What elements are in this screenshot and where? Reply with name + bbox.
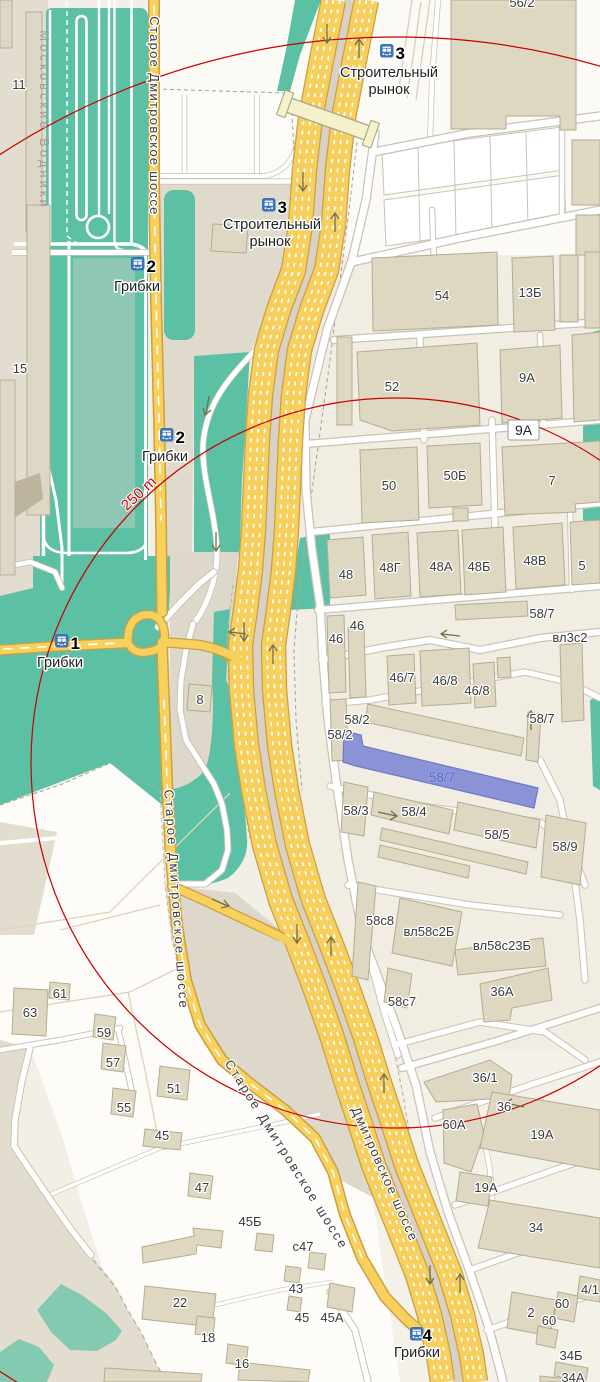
svg-text:18: 18 [201, 1330, 215, 1345]
svg-text:11: 11 [12, 77, 26, 92]
svg-text:46: 46 [329, 631, 343, 646]
svg-text:58/7: 58/7 [529, 606, 554, 621]
svg-text:60: 60 [555, 1296, 569, 1311]
svg-text:50: 50 [382, 478, 396, 493]
svg-text:5: 5 [578, 558, 585, 573]
svg-text:58/2: 58/2 [344, 712, 369, 727]
svg-text:Грибки: Грибки [37, 655, 83, 671]
svg-text:вл3с2: вл3с2 [552, 630, 587, 645]
svg-text:2: 2 [147, 257, 156, 276]
svg-text:15: 15 [13, 361, 27, 376]
svg-text:46/8: 46/8 [432, 673, 457, 688]
svg-text:45: 45 [155, 1128, 169, 1143]
svg-text:48: 48 [339, 567, 353, 582]
svg-text:34Б: 34Б [560, 1348, 583, 1363]
svg-text:13Б: 13Б [519, 285, 542, 300]
svg-text:43: 43 [289, 1281, 303, 1296]
svg-text:58/3: 58/3 [343, 803, 368, 818]
svg-text:22: 22 [173, 1295, 187, 1310]
svg-text:48В: 48В [523, 553, 546, 568]
svg-text:58/7: 58/7 [429, 770, 455, 785]
svg-text:рынок: рынок [369, 82, 411, 98]
svg-text:34А: 34А [561, 1370, 584, 1382]
svg-text:60: 60 [542, 1313, 556, 1328]
svg-text:46/8: 46/8 [464, 683, 489, 698]
svg-text:58/2: 58/2 [327, 727, 352, 742]
svg-text:56/2: 56/2 [509, 0, 534, 10]
svg-text:вл58с2Б: вл58с2Б [404, 924, 455, 939]
svg-text:Старое Дмитровское шоссе: Старое Дмитровское шоссе [147, 16, 162, 215]
svg-text:58с7: 58с7 [388, 994, 416, 1009]
svg-text:48Б: 48Б [468, 559, 491, 574]
svg-text:рынок: рынок [250, 234, 292, 250]
svg-text:8: 8 [196, 692, 203, 707]
svg-text:46/7: 46/7 [389, 670, 414, 685]
svg-text:46: 46 [350, 618, 364, 633]
svg-text:50Б: 50Б [444, 468, 467, 483]
svg-text:7: 7 [548, 473, 555, 488]
svg-text:4/1: 4/1 [581, 1282, 599, 1297]
svg-text:Строительный: Строительный [223, 217, 321, 233]
svg-text:58/9: 58/9 [552, 839, 577, 854]
svg-text:58/5: 58/5 [484, 827, 509, 842]
svg-text:58с8: 58с8 [366, 913, 394, 928]
svg-text:Строительный: Строительный [340, 65, 438, 81]
svg-text:59: 59 [97, 1025, 111, 1040]
svg-text:Московские Водники: Московские Водники [37, 30, 52, 209]
svg-text:3: 3 [278, 198, 287, 217]
svg-text:45А: 45А [320, 1310, 343, 1325]
svg-text:2: 2 [176, 428, 185, 447]
svg-text:4: 4 [423, 1326, 433, 1345]
svg-text:54: 54 [435, 288, 449, 303]
svg-text:45Б: 45Б [239, 1214, 262, 1229]
svg-text:Грибки: Грибки [394, 1345, 440, 1361]
svg-text:48Г: 48Г [379, 560, 401, 575]
svg-text:63: 63 [23, 1005, 37, 1020]
svg-text:36/1: 36/1 [472, 1070, 497, 1085]
svg-text:1: 1 [71, 634, 80, 653]
svg-text:вл58с23Б: вл58с23Б [473, 938, 531, 953]
svg-text:16: 16 [235, 1356, 249, 1371]
svg-text:9А: 9А [515, 422, 533, 438]
svg-text:57: 57 [106, 1055, 120, 1070]
svg-text:58/7: 58/7 [529, 711, 554, 726]
svg-text:60А: 60А [442, 1117, 465, 1132]
svg-text:Грибки: Грибки [142, 449, 188, 465]
svg-text:48А: 48А [429, 559, 452, 574]
svg-text:36: 36 [497, 1099, 511, 1114]
svg-text:55: 55 [117, 1100, 131, 1115]
svg-text:19А: 19А [474, 1180, 497, 1195]
svg-text:61: 61 [53, 986, 67, 1001]
svg-text:9А: 9А [519, 370, 535, 385]
svg-text:3: 3 [396, 44, 405, 63]
svg-text:19А: 19А [530, 1127, 553, 1142]
svg-text:2: 2 [527, 1305, 534, 1320]
svg-text:47: 47 [195, 1180, 209, 1195]
svg-text:58/4: 58/4 [401, 804, 426, 819]
svg-text:51: 51 [167, 1081, 181, 1096]
svg-text:36А: 36А [490, 984, 513, 999]
svg-text:34: 34 [529, 1220, 543, 1235]
svg-text:Грибки: Грибки [114, 279, 160, 295]
svg-text:45: 45 [295, 1310, 309, 1325]
svg-text:52: 52 [385, 379, 399, 394]
svg-text:с47: с47 [293, 1239, 314, 1254]
